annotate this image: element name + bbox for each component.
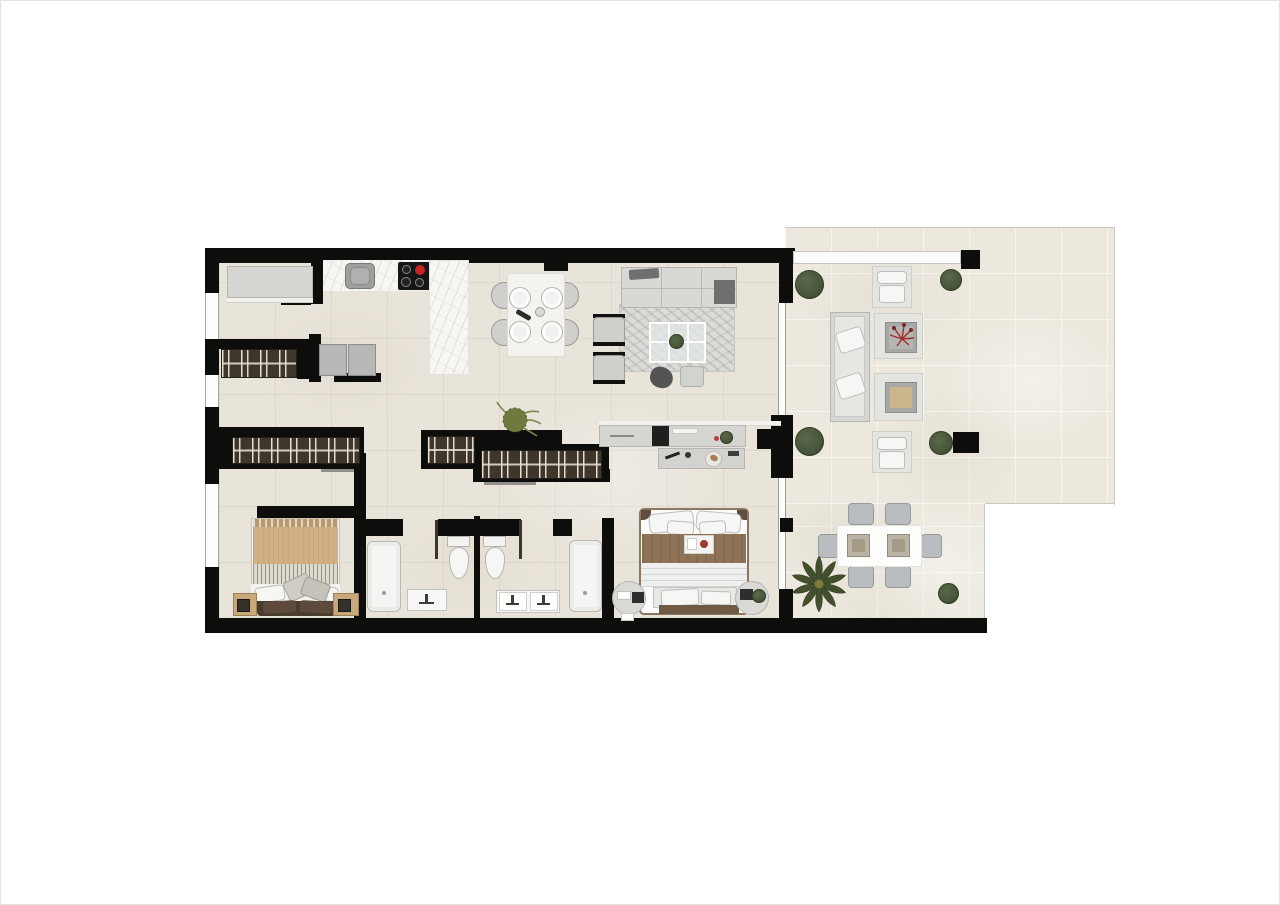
living-armchair [593, 317, 625, 344]
terrace-table-tray [890, 387, 912, 408]
hob-burner [415, 278, 424, 287]
bed2-headboard-pillow [263, 600, 297, 614]
master-bed-base [659, 605, 739, 614]
bed2-throw-band [253, 519, 338, 527]
hall-wardrobe-c [481, 450, 602, 479]
sofa-cushion-line [701, 267, 702, 308]
armchair-arm [593, 380, 625, 384]
nightstand-clock [632, 592, 644, 603]
nightstand-lamp [338, 599, 351, 612]
nightstand-plant [752, 589, 766, 603]
terrace-edge-right [1114, 228, 1115, 505]
tray-book [687, 538, 697, 550]
bath2-door-leaf [519, 520, 522, 559]
bath2-faucet [511, 595, 514, 603]
wall-bath1-top [366, 519, 403, 536]
terrace-dining-chair [848, 566, 874, 588]
terrace-dining-chair [885, 503, 911, 525]
sideboard-plant [720, 431, 733, 444]
terrace-railing [793, 251, 961, 264]
window-kitchen [205, 293, 219, 341]
nightstand-item [617, 591, 631, 600]
terrace-armchair-back [877, 271, 907, 284]
coffee-table-plant [669, 334, 684, 349]
master-duvet [641, 563, 747, 587]
laundry-wardrobe [221, 349, 297, 378]
window-laundry [205, 375, 219, 407]
sofa-dark-pillow [629, 268, 660, 280]
bed2-headboard-pillow [300, 600, 334, 614]
hall-wardrobe-a [232, 437, 360, 464]
remote [621, 613, 634, 621]
entry-cabinet-shadow [227, 298, 313, 303]
terrace-pier-top [961, 250, 980, 269]
bath1-drain [382, 591, 386, 595]
terrace-edge-step [985, 503, 1115, 504]
bath1-bathtub [367, 541, 401, 612]
placemat-dish [892, 539, 905, 552]
wall-slider-pier [780, 518, 793, 532]
pouf [680, 366, 704, 387]
bath2-faucet-bar [506, 603, 519, 605]
bath2-bathtub [569, 540, 602, 612]
wall-bath2-top [553, 519, 572, 536]
tray-flower [700, 540, 708, 548]
armchair-arm [593, 342, 625, 346]
wall-left-1 [205, 263, 219, 293]
plate-setting [541, 321, 563, 343]
wall-bottom [205, 618, 987, 633]
hob-burner-red [415, 265, 425, 275]
terrace-pier-mid [953, 432, 979, 453]
bath1-faucet-bar [419, 602, 434, 604]
terrace-bush [929, 431, 953, 455]
window-bedroom2 [205, 484, 219, 567]
dresser-decor [685, 452, 691, 458]
wall-top [205, 248, 795, 263]
sofa-side-tray [714, 280, 735, 304]
sideboard-red-decor [714, 436, 719, 441]
hallway-fern-plant [487, 399, 543, 441]
red-plant [885, 320, 919, 354]
plate-setting [509, 321, 531, 343]
terrace-dining-chair [885, 566, 911, 588]
wall-bath1-bath2 [474, 516, 480, 619]
terrace-bush [795, 427, 824, 456]
terrace-edge-lower-right [984, 504, 985, 619]
sideboard-handle [610, 435, 634, 437]
plate-setting [541, 287, 563, 309]
decanter [535, 307, 545, 317]
bath2-drain [583, 591, 587, 595]
terrace-edge-top [785, 227, 1115, 228]
hob-burner [402, 265, 411, 274]
tv [652, 426, 669, 446]
wardrobe-track-c [484, 482, 536, 485]
terrace-dining-chair [848, 503, 874, 525]
kitchen-sink-basin [350, 267, 370, 285]
terrace-bush [795, 270, 824, 299]
bath2-faucet [542, 595, 545, 603]
terrace-armchair-seat [879, 285, 905, 303]
bath1-toilet-tank [447, 536, 470, 547]
nightstand-lamp [237, 599, 250, 612]
kitchen-island [429, 260, 469, 375]
living-armchair [593, 355, 625, 382]
sofa-cushion-line [661, 267, 662, 308]
bath2-faucet-bar [537, 603, 550, 605]
hall-wardrobe-b [427, 436, 475, 464]
wall-laundry [205, 339, 297, 349]
washer [319, 344, 347, 376]
dryer [348, 344, 376, 376]
sliding-door-living [778, 303, 786, 415]
hob-burner [401, 277, 411, 287]
terrace-dining-chair [921, 534, 942, 558]
bath2-toilet-tank [483, 536, 506, 547]
palm-plant [787, 553, 851, 615]
sliding-door-bedroom [778, 478, 786, 589]
entry-console-cabinet [227, 266, 313, 298]
dresser-decor-dark [728, 451, 739, 456]
wall-bedroom2-top [257, 506, 354, 518]
terrace-bush [940, 269, 962, 291]
wall-terrace-divider-top [779, 263, 793, 303]
terrace-bush [938, 583, 959, 604]
floor-plan-page [0, 0, 1280, 905]
bench-cushion [701, 590, 731, 605]
plate-setting [509, 287, 531, 309]
sideboard-tray [672, 428, 698, 434]
placemat-dish [852, 539, 865, 552]
terrace-armchair-seat [879, 451, 905, 469]
wall-terrace-divider-mid-stub [757, 429, 773, 449]
terrace-armchair-back [877, 437, 907, 450]
wall-top-pier [544, 263, 568, 271]
